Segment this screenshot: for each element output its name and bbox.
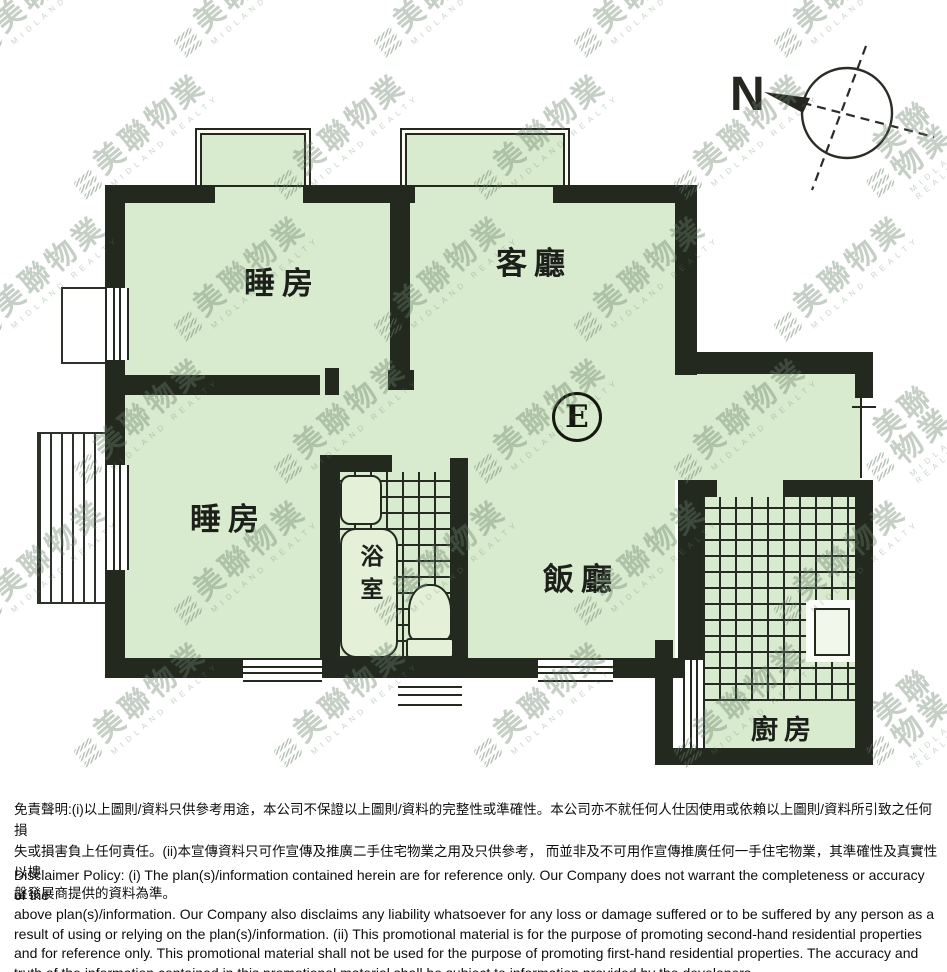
window-bedroom-left bbox=[105, 465, 129, 570]
wall-bedroom-living bbox=[390, 203, 410, 375]
compass-axis-2 bbox=[788, 99, 934, 137]
midland-logo-icon bbox=[271, 735, 305, 770]
wall-top bbox=[105, 185, 675, 203]
wall-between-bedrooms bbox=[105, 375, 320, 395]
compass-circle bbox=[802, 68, 892, 158]
window-bathroom-bottom bbox=[398, 676, 462, 706]
midland-logo-icon bbox=[471, 735, 505, 770]
midland-logo-icon bbox=[371, 25, 405, 60]
wall-bottom-bedroom bbox=[105, 658, 243, 678]
living-room-label: 客廳 bbox=[434, 238, 634, 283]
floor-plan-page: 浴室 睡房 客廳 睡房 飯廳 廚房 E N 美聯物業MIDLAND REALTY… bbox=[0, 0, 947, 972]
watermark: 美聯物業MIDLAND REALTY bbox=[166, 0, 321, 65]
wall-bottom-bath bbox=[322, 658, 538, 678]
wall-stub-hallway bbox=[388, 370, 414, 390]
disclaimer-english: Disclaimer Policy: (i) The plan(s)/infor… bbox=[14, 866, 940, 972]
compass-north-label: N bbox=[730, 68, 765, 121]
kitchen-sink bbox=[814, 608, 850, 656]
kitchen-label: 廚房 bbox=[704, 708, 864, 747]
midland-logo-icon bbox=[571, 25, 605, 60]
unit-marker: E bbox=[552, 392, 602, 442]
kitchen-back-door bbox=[683, 660, 705, 748]
wall-left-upper bbox=[105, 185, 125, 288]
bedroom-top-label: 睡房 bbox=[182, 258, 382, 303]
wall-bathroom-left bbox=[320, 455, 338, 660]
kitchen-tiles bbox=[703, 497, 855, 701]
midland-logo-icon bbox=[863, 449, 897, 484]
midland-logo-icon bbox=[771, 309, 805, 344]
entry-door-line bbox=[860, 376, 862, 478]
wall-kitchen-bottom bbox=[655, 748, 873, 765]
midland-logo-icon bbox=[0, 309, 5, 344]
bay-opening-1 bbox=[215, 187, 303, 203]
midland-logo-icon bbox=[0, 25, 5, 60]
bedroom-left-label: 睡房 bbox=[128, 494, 328, 539]
wall-stub-bedroom2-door bbox=[325, 368, 339, 395]
bathroom-label: 浴室 bbox=[352, 544, 386, 610]
wall-bathroom-right bbox=[450, 458, 468, 660]
window-bedroom-top-left bbox=[105, 288, 129, 360]
ac-louvre-platform bbox=[37, 432, 111, 604]
wall-kitchen-top-left bbox=[703, 480, 717, 497]
compass-north-arrow bbox=[764, 92, 810, 113]
entry-door-tick bbox=[852, 406, 876, 408]
wall-entry-stub bbox=[855, 372, 873, 398]
wall-kitchen-top-right bbox=[783, 480, 873, 497]
toilet-base bbox=[406, 638, 454, 658]
wall-kitchen-left-outer bbox=[655, 640, 673, 748]
window-dining-bottom bbox=[538, 658, 613, 682]
bay-opening-2 bbox=[415, 187, 553, 203]
midland-logo-icon bbox=[0, 593, 5, 628]
midland-logo-icon bbox=[171, 25, 205, 60]
watermark: 美聯物業MIDLAND REALTY bbox=[766, 210, 921, 349]
watermark: 美聯物業MIDLAND REALTY bbox=[0, 0, 121, 65]
wall-corridor-top bbox=[675, 352, 873, 374]
midland-logo-icon bbox=[71, 735, 105, 770]
wall-living-right bbox=[675, 185, 697, 375]
toilet-bowl bbox=[408, 584, 452, 644]
wall-dining-kitchen bbox=[678, 480, 703, 678]
compass: N bbox=[698, 38, 947, 208]
bathtub: 浴室 bbox=[340, 528, 398, 658]
dining-room-label: 飯廳 bbox=[481, 554, 681, 599]
watermark: 美聯物業MIDLAND REALTY bbox=[366, 0, 521, 65]
midland-logo-icon bbox=[71, 167, 105, 202]
bathroom-sink bbox=[340, 475, 382, 525]
window-bedroom-bottom bbox=[243, 658, 322, 682]
entry-corridor-area bbox=[675, 374, 860, 480]
